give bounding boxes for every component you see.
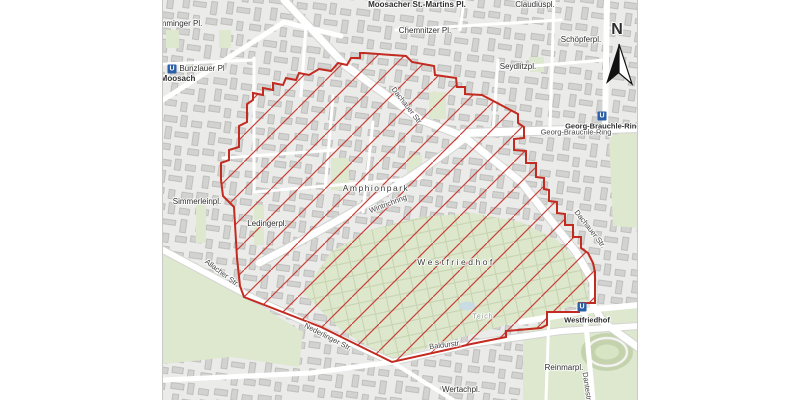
city-map: Moosacher St.-Martins Pl.Claudiuspl.Chem… xyxy=(162,0,638,400)
map-canvas xyxy=(163,0,638,400)
simmerleinpl-green xyxy=(196,203,206,243)
map-page: Moosacher St.-Martins Pl.Claudiuspl.Chem… xyxy=(0,0,800,400)
north-vertical-road xyxy=(605,0,607,131)
green-patch xyxy=(219,30,231,48)
green-patch xyxy=(166,30,179,48)
green-east-strip xyxy=(609,132,638,228)
